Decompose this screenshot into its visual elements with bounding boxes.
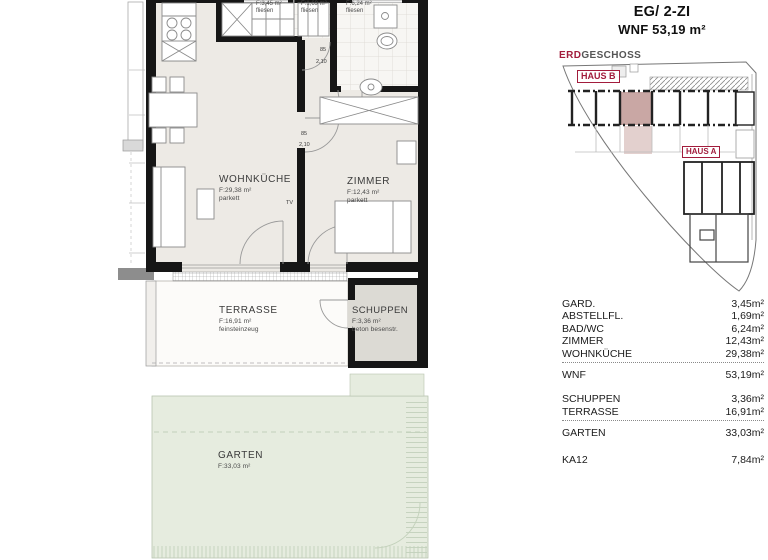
row-value: 7,84m² [731, 454, 764, 466]
row-label: KA12 [562, 454, 588, 466]
tv-label: TV [286, 200, 293, 206]
zimmer-area: F:12,43 m² [347, 189, 390, 197]
garten-name: GARTEN [218, 450, 263, 461]
table-row: KA127,84m² [562, 454, 764, 466]
row-label: BAD/WC [562, 323, 604, 335]
table-row: GARD.3,45m² [562, 298, 764, 310]
table-row: BAD/WC6,24m² [562, 323, 764, 335]
wohnkueche-area: F:29,38 m² [219, 187, 291, 195]
wohnkueche-finish: parkett [219, 195, 291, 203]
table-separator [562, 360, 764, 363]
bad-wc-finish: fliesen [346, 8, 372, 15]
row-label: TERRASSE [562, 406, 619, 418]
row-label: ZIMMER [562, 335, 603, 347]
hall-door-height: 2,10 [316, 59, 327, 65]
garderobe-area: F:3,45 m² [256, 1, 282, 8]
schuppen-label: SCHUPPEN F:3,36 m² beton besenstr. [352, 306, 408, 333]
row-label: WOHNKÜCHE [562, 348, 632, 360]
row-label: GARD. [562, 298, 595, 310]
table-row-wnf: WNF53,19m² [562, 369, 764, 381]
floor-plan-svg [0, 0, 768, 560]
zimmer-name: ZIMMER [347, 176, 390, 187]
schuppen-finish: beton besenstr. [352, 326, 408, 334]
abstellraum-finish: fliesen [301, 8, 327, 15]
schuppen-name: SCHUPPEN [352, 306, 408, 316]
row-value: 16,91m² [725, 406, 764, 418]
garderobe-finish: fliesen [256, 8, 282, 15]
zimmer-door-width: 85 [301, 131, 307, 137]
garden-area [152, 374, 428, 558]
table-row: SCHUPPEN3,36m² [562, 393, 764, 405]
site-plan [563, 62, 756, 291]
unit-type-title: EG/ 2-ZI [560, 4, 764, 20]
level-label-accent: ERD [559, 50, 581, 61]
bad-wc-label: F:6,24 m² fliesen [346, 1, 372, 15]
terrasse-finish: feinsteinzeug [219, 326, 278, 334]
row-label: SCHUPPEN [562, 393, 620, 405]
abstellraum-label: F:1,69 m² fliesen [301, 1, 327, 15]
terrasse-name: TERRASSE [219, 305, 278, 316]
table-row: ZIMMER12,43m² [562, 335, 764, 347]
row-label: ABSTELLFL. [562, 310, 623, 322]
plan-title: EG/ 2-ZI WNF 53,19 m² [560, 4, 764, 37]
garderobe-label: F:3,45 m² fliesen [256, 1, 282, 15]
wohnkueche-name: WOHNKÜCHE [219, 174, 291, 185]
table-row: ABSTELLFL.1,69m² [562, 310, 764, 322]
row-value: 3,45m² [731, 298, 764, 310]
row-value: 6,24m² [731, 323, 764, 335]
schuppen-area: F:3,36 m² [352, 318, 408, 326]
hall-door-width: 85 [320, 47, 326, 53]
garten-label: GARTEN F:33,03 m² [218, 450, 263, 471]
abstellraum-area: F:1,69 m² [301, 1, 327, 8]
haus-b-tag: HAUS B [577, 70, 620, 83]
area-table: GARD.3,45m² ABSTELLFL.1,69m² BAD/WC6,24m… [562, 298, 764, 466]
table-row: TERRASSE16,91m² [562, 406, 764, 418]
row-label: WNF [562, 369, 586, 381]
garten-area: F:33,03 m² [218, 463, 263, 471]
row-value: 53,19m² [725, 369, 764, 381]
row-value: 12,43m² [725, 335, 764, 347]
row-label: GARTEN [562, 427, 606, 439]
drainage-grate [173, 272, 347, 281]
level-label: ERDGESCHOSS [559, 50, 641, 61]
terrasse-label: TERRASSE F:16,91 m² feinsteinzeug [219, 305, 278, 333]
bad-wc-area: F:6,24 m² [346, 1, 372, 8]
wohnkueche-label: WOHNKÜCHE F:29,38 m² parkett [219, 174, 291, 202]
zimmer-finish: parkett [347, 197, 390, 205]
row-value: 1,69m² [731, 310, 764, 322]
floorplan-page: EG/ 2-ZI WNF 53,19 m² ERDGESCHOSS HAUS B… [0, 0, 768, 560]
table-row: GARTEN33,03m² [562, 427, 764, 439]
row-value: 33,03m² [725, 427, 764, 439]
table-row: WOHNKÜCHE29,38m² [562, 348, 764, 360]
terrasse-area: F:16,91 m² [219, 318, 278, 326]
zimmer-label: ZIMMER F:12,43 m² parkett [347, 176, 390, 204]
row-value: 29,38m² [725, 348, 764, 360]
zimmer-door-height: 2,10 [299, 142, 310, 148]
level-label-rest: GESCHOSS [581, 50, 641, 61]
living-area-title: WNF 53,19 m² [560, 22, 764, 37]
row-value: 3,36m² [731, 393, 764, 405]
table-separator [562, 418, 764, 421]
haus-a-tag: HAUS A [682, 146, 720, 158]
